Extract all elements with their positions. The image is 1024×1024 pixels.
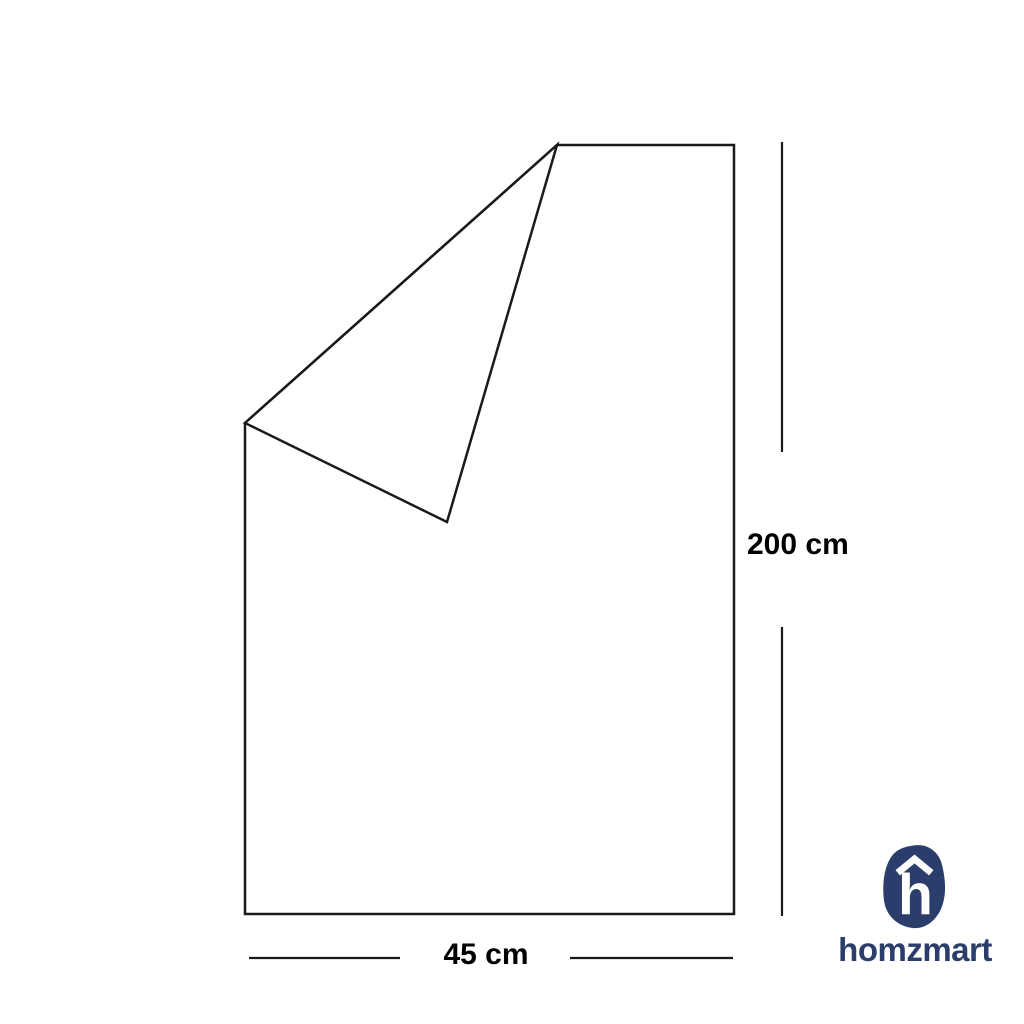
product-dimension-image: 200 cm 45 cm h homzmart — [0, 0, 1024, 1024]
homzmart-wordmark: homzmart — [815, 933, 1015, 966]
height-dimension-label: 200 cm — [747, 530, 849, 560]
folded-sheet-diagram — [0, 0, 1024, 1024]
logo-letter-h: h — [898, 863, 933, 927]
homzmart-pebble-h-icon: h — [882, 845, 947, 930]
width-dimension-label: 45 cm — [400, 940, 572, 970]
